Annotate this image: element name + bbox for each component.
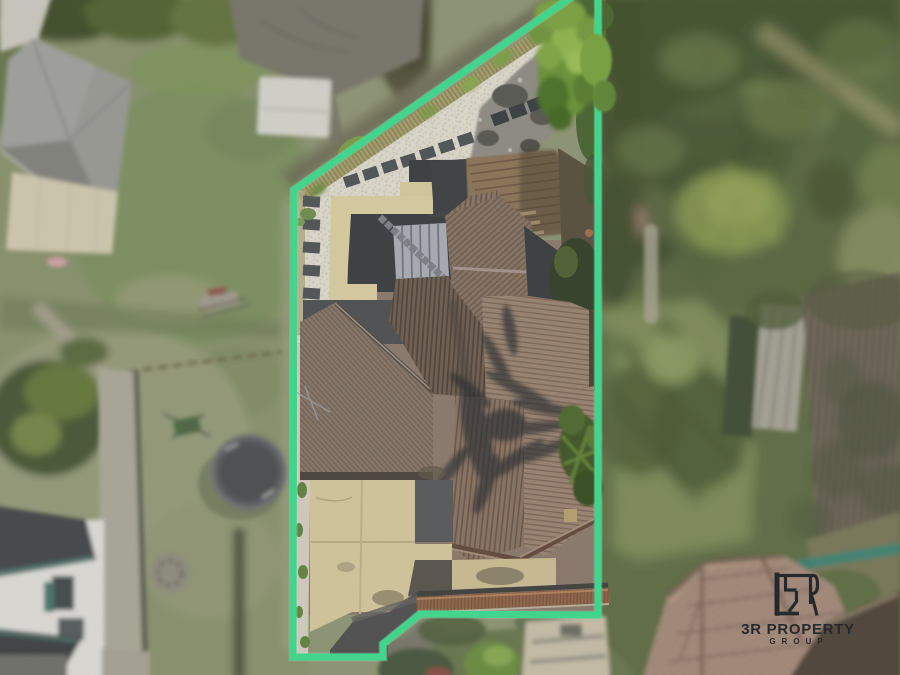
svg-text:3R PROPERTY: 3R PROPERTY xyxy=(741,621,855,638)
svg-text:GROUP: GROUP xyxy=(769,637,828,646)
